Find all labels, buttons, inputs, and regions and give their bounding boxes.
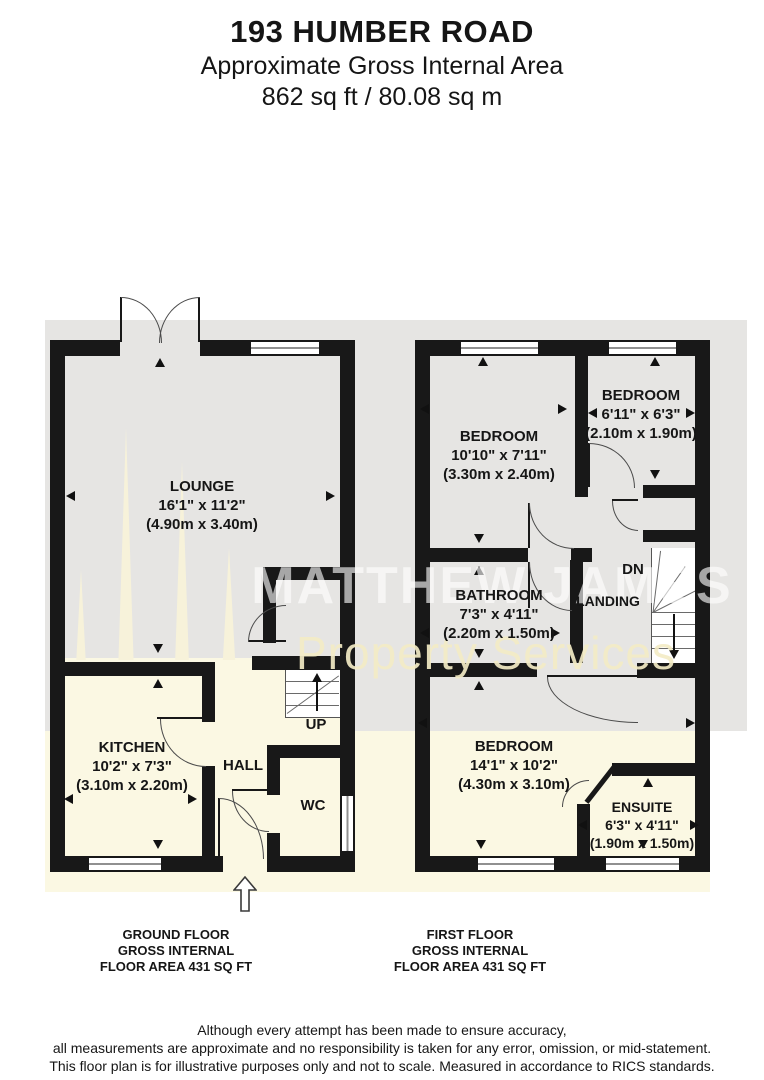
wall <box>267 856 355 872</box>
room-dims-ft: 10'2" x 7'3" <box>92 758 172 775</box>
room-label-bedroom2: BEDROOM <box>602 387 680 404</box>
spire-icon <box>68 570 94 660</box>
room-dims-m: (4.90m x 3.40m) <box>146 516 258 533</box>
first-floor-caption: FLOOR AREA 431 SQ FT <box>394 959 546 974</box>
disclaimer-line: all measurements are approximate and no … <box>53 1040 711 1056</box>
measure-arrow-icon <box>326 491 335 501</box>
measure-arrow-icon <box>420 404 429 414</box>
wall <box>267 745 280 795</box>
wall <box>267 745 355 758</box>
room-label-landing: LANDING <box>576 593 640 609</box>
room-dims-ft: 14'1" x 10'2" <box>470 757 558 774</box>
measure-arrow-icon <box>478 357 488 366</box>
wall <box>675 340 710 356</box>
wall <box>643 485 695 498</box>
stairs-up-label: UP <box>306 716 327 733</box>
wall <box>678 856 710 872</box>
window <box>460 340 539 356</box>
wall <box>415 856 477 872</box>
measure-arrow-icon <box>650 470 660 479</box>
spire-icon <box>212 548 246 660</box>
measure-arrow-icon <box>153 644 163 653</box>
disclaimer-line: This floor plan is for illustrative purp… <box>49 1058 714 1074</box>
ground-floor-caption: GROUND FLOOR <box>123 927 230 942</box>
room-label-bedroom3: BEDROOM <box>475 738 553 755</box>
measure-arrow-icon <box>66 491 75 501</box>
room-dims-m: (1.90m x 1.50m) <box>590 835 694 851</box>
window <box>340 795 355 852</box>
page-subtitle: Approximate Gross Internal Area <box>201 52 564 81</box>
wall <box>200 340 250 356</box>
page-title: 193 HUMBER ROAD <box>230 14 534 50</box>
room-dims-m: (3.30m x 2.40m) <box>443 466 555 483</box>
room-dims-m: (3.10m x 2.20m) <box>76 777 188 794</box>
first-floor-caption: FIRST FLOOR <box>427 927 514 942</box>
window <box>608 340 677 356</box>
room-label-hall: HALL <box>223 757 263 774</box>
window <box>250 340 320 356</box>
room-dims-ft: 7'3" x 4'11" <box>460 606 539 623</box>
room-label-ensuite: ENSUITE <box>612 799 673 815</box>
ground-floor-caption: FLOOR AREA 431 SQ FT <box>100 959 252 974</box>
measure-arrow-icon <box>474 534 484 543</box>
measure-arrow-icon <box>476 840 486 849</box>
room-dims-ft: 6'3" x 4'11" <box>605 817 679 833</box>
stair-tread <box>286 705 339 706</box>
measure-arrow-icon <box>690 820 699 830</box>
wall <box>577 804 590 870</box>
measure-arrow-icon <box>686 718 695 728</box>
window <box>88 856 162 872</box>
wall <box>643 530 695 542</box>
room-dims-ft: 6'11" x 6'3" <box>602 406 681 423</box>
room-dims-m: (2.10m x 1.90m) <box>585 425 697 442</box>
measure-arrow-icon <box>153 840 163 849</box>
wall <box>267 833 280 866</box>
wall <box>50 856 88 872</box>
disclaimer-line: Although every attempt has been made to … <box>197 1022 566 1038</box>
measure-arrow-icon <box>643 778 653 787</box>
window <box>477 856 555 872</box>
room-dims-m: (2.20m x 1.50m) <box>443 625 555 642</box>
measure-arrow-icon <box>578 820 587 830</box>
measure-arrow-icon <box>588 408 597 418</box>
wall <box>202 662 215 722</box>
room-dims-m: (4.30m x 3.10m) <box>458 776 570 793</box>
wall <box>415 340 460 356</box>
total-area: 862 sq ft / 80.08 sq m <box>262 83 502 112</box>
wall <box>50 340 65 870</box>
room-dims-ft: 16'1" x 11'2" <box>158 497 245 514</box>
measure-arrow-icon <box>153 679 163 688</box>
window <box>605 856 680 872</box>
measure-arrow-icon <box>188 794 197 804</box>
room-dims-ft: 10'10" x 7'11" <box>451 447 547 464</box>
room-label-lounge: LOUNGE <box>170 478 234 495</box>
room-label-bedroom1: BEDROOM <box>460 428 538 445</box>
entrance-arrow-icon <box>233 876 257 912</box>
wall <box>612 763 710 776</box>
measure-arrow-icon <box>686 408 695 418</box>
wall <box>537 340 608 356</box>
wall <box>50 662 208 676</box>
measure-arrow-icon <box>155 358 165 367</box>
stair-arrow-shaft <box>316 681 318 711</box>
watermark-spires <box>60 420 350 660</box>
room-label-kitchen: KITCHEN <box>99 739 166 756</box>
ground-floor-caption: GROSS INTERNAL <box>118 943 234 958</box>
wall <box>50 340 120 356</box>
room-label-bathroom: BATHROOM <box>455 587 542 604</box>
door-arc <box>121 297 162 343</box>
measure-arrow-icon <box>474 681 484 690</box>
floorplan-page: 193 HUMBER ROAD Approximate Gross Intern… <box>0 0 764 1080</box>
measure-arrow-icon <box>64 794 73 804</box>
wall <box>202 766 215 866</box>
measure-arrow-icon <box>558 404 567 414</box>
measure-arrow-icon <box>418 718 427 728</box>
first-floor-caption: GROSS INTERNAL <box>412 943 528 958</box>
stairs-down-label: DN <box>622 561 644 578</box>
spire-icon <box>105 428 147 660</box>
measure-arrow-icon <box>650 357 660 366</box>
room-label-wc: WC <box>301 797 326 814</box>
door-arc <box>159 297 200 343</box>
